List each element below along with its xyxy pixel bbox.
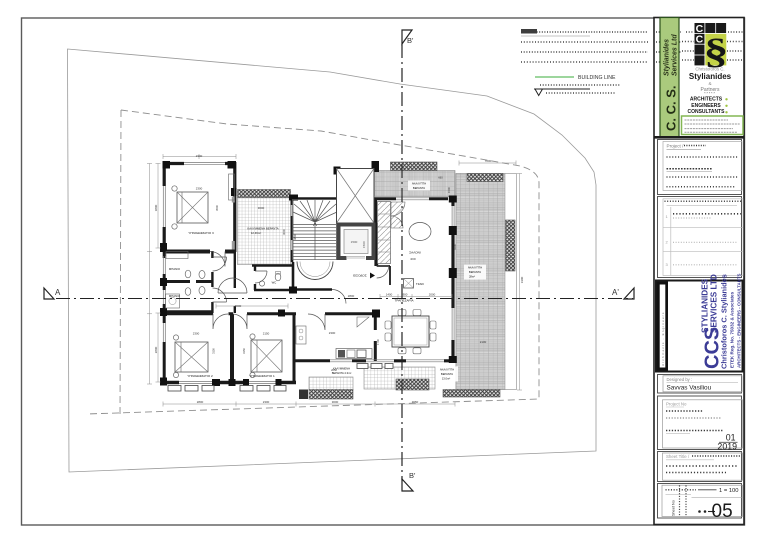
svg-text:ΣΑΛΟΝΙ: ΣΑΛΟΝΙ: [409, 251, 421, 255]
svg-text:WC: WC: [272, 281, 277, 285]
svg-text:ΒΕΡΑΝΤΑ: ΒΕΡΑΝΤΑ: [469, 270, 481, 274]
svg-text:BUILDING LINE: BUILDING LINE: [578, 75, 616, 81]
svg-text:Designed by :: Designed by :: [667, 377, 693, 382]
svg-text:2300: 2300: [193, 332, 200, 336]
svg-text:C: C: [696, 34, 704, 46]
svg-text:ΤΡΑΠΕΖΑΡΙΑ: ΤΡΑΠΕΖΑΡΙΑ: [394, 299, 414, 303]
svg-text:&: &: [708, 81, 711, 86]
svg-text:2800: 2800: [197, 400, 204, 404]
svg-text:Sheet Title /: Sheet Title /: [666, 454, 690, 459]
svg-text:Stylianides: Stylianides: [664, 39, 671, 76]
svg-text:3000: 3000: [235, 304, 242, 308]
svg-text:ARCHITECTS: ARCHITECTS: [690, 97, 723, 103]
svg-text:900: 900: [403, 293, 408, 297]
svg-text:ΒΕΡΑΝΤΑ: ΒΕΡΑΝΤΑ: [441, 372, 453, 376]
svg-text:1400: 1400: [386, 293, 393, 297]
svg-text:3800: 3800: [154, 204, 158, 211]
svg-text:A: A: [55, 288, 61, 297]
svg-text:2100: 2100: [480, 340, 487, 344]
svg-text:*****: *****: [704, 92, 716, 96]
svg-text:2800: 2800: [154, 346, 158, 353]
svg-text:Project No: Project No: [666, 401, 687, 406]
svg-text:B': B': [409, 471, 416, 480]
svg-text:4600: 4600: [410, 257, 416, 261]
svg-text:1 = 100: 1 = 100: [719, 488, 739, 494]
svg-text:ETEK Reg. No. 75032 & Associ: ETEK Reg. No. 75032 & Associates: [730, 291, 735, 368]
svg-text:2050: 2050: [331, 368, 337, 372]
svg-text:3000: 3000: [332, 400, 339, 404]
svg-text:12.46m²: 12.46m²: [251, 231, 261, 235]
svg-text:Christoforos C. Stylianides: Christoforos C. Stylianides: [720, 274, 729, 369]
svg-text:1500: 1500: [447, 187, 451, 193]
svg-text:ΤΖΑΚΙ: ΤΖΑΚΙ: [416, 282, 424, 286]
svg-text:Savvas Vasiliou: Savvas Vasiliou: [667, 385, 712, 392]
svg-text:3000: 3000: [282, 229, 286, 235]
svg-text:3500: 3500: [215, 205, 219, 211]
svg-text:2000: 2000: [429, 293, 436, 297]
svg-text:2300: 2300: [329, 331, 336, 335]
svg-text:STYLIANIDES: STYLIANIDES: [701, 278, 710, 333]
svg-text:2300: 2300: [263, 400, 270, 404]
svg-text:28m²: 28m²: [469, 274, 475, 278]
svg-text:3300: 3300: [520, 276, 524, 283]
svg-text:2300: 2300: [196, 187, 203, 191]
svg-text:13.0m²: 13.0m²: [442, 376, 450, 380]
svg-text:CONSULTANTS: CONSULTANTS: [687, 109, 725, 115]
svg-text:ARCHITECTS - ENGINEERS - CONSU: ARCHITECTS - ENGINEERS - CONSULTANTS: [737, 273, 742, 368]
svg-text:2019: 2019: [717, 441, 737, 451]
svg-text:Services Ltd: Services Ltd: [672, 34, 679, 76]
svg-text:ΒΕΡΑΝΤΑ: ΒΕΡΑΝΤΑ: [413, 186, 425, 190]
svg-text:Architects - Engineers: Architects - Engineers: [661, 312, 665, 366]
svg-text:C. C. S.: C. C. S.: [664, 85, 679, 131]
svg-text:ΑΚΑΛΥΠΤΗ: ΑΚΑΛΥΠΤΗ: [468, 266, 482, 270]
svg-text:Sheet No: Sheet No: [672, 500, 676, 516]
svg-text:3800: 3800: [293, 234, 297, 240]
svg-text:ΑΚΑΛΥΠΤΗ: ΑΚΑΛΥΠΤΗ: [412, 182, 426, 186]
svg-text:1500: 1500: [362, 241, 366, 248]
svg-text:A': A': [612, 288, 619, 297]
svg-text:Stylianides: Stylianides: [689, 72, 732, 81]
svg-text:ENGINEERS: ENGINEERS: [691, 103, 721, 109]
svg-text:ΜΠΑΝΙΟ: ΜΠΑΝΙΟ: [169, 267, 181, 271]
svg-text:ΑΚΑΛΥΠΤΗ: ΑΚΑΛΥΠΤΗ: [440, 368, 454, 372]
svg-text:7000: 7000: [485, 159, 492, 163]
svg-text:Project /: Project /: [667, 144, 685, 149]
svg-text:3050: 3050: [412, 400, 419, 404]
svg-text:B': B': [407, 36, 414, 45]
svg-text:ΥΠΝΟΔΩΜΑΤΙΟ 1: ΥΠΝΟΔΩΜΑΤΙΟ 1: [249, 374, 275, 378]
svg-text:ΥΠΝΟΔΩΜΑΤΙΟ 2: ΥΠΝΟΔΩΜΑΤΙΟ 2: [187, 374, 213, 378]
svg-text:Christoforos C.: Christoforos C.: [695, 67, 724, 72]
svg-text:ΜΠΑΝΙΟ: ΜΠΑΝΙΟ: [169, 294, 181, 298]
svg-text:4100: 4100: [453, 244, 457, 250]
svg-text:3000: 3000: [258, 206, 265, 210]
svg-text:2300: 2300: [196, 154, 203, 158]
svg-text:05: 05: [712, 501, 733, 522]
svg-text:ΥΠΝΟΔΩΜΑΤΙΟ 3: ΥΠΝΟΔΩΜΑΤΙΟ 3: [188, 231, 214, 235]
svg-text:SERVICES LTD: SERVICES LTD: [710, 274, 719, 333]
svg-text:3150: 3150: [242, 348, 246, 354]
svg-text:2150: 2150: [263, 332, 270, 336]
svg-text:1500: 1500: [351, 240, 358, 244]
svg-text:2800: 2800: [348, 294, 355, 298]
svg-text:ΕΙΣΟΔΟΣ: ΕΙΣΟΔΟΣ: [353, 274, 367, 278]
svg-text:§: §: [704, 31, 729, 71]
svg-text:660: 660: [438, 176, 443, 180]
svg-text:3150: 3150: [212, 348, 216, 354]
svg-text:1700: 1700: [376, 339, 380, 345]
